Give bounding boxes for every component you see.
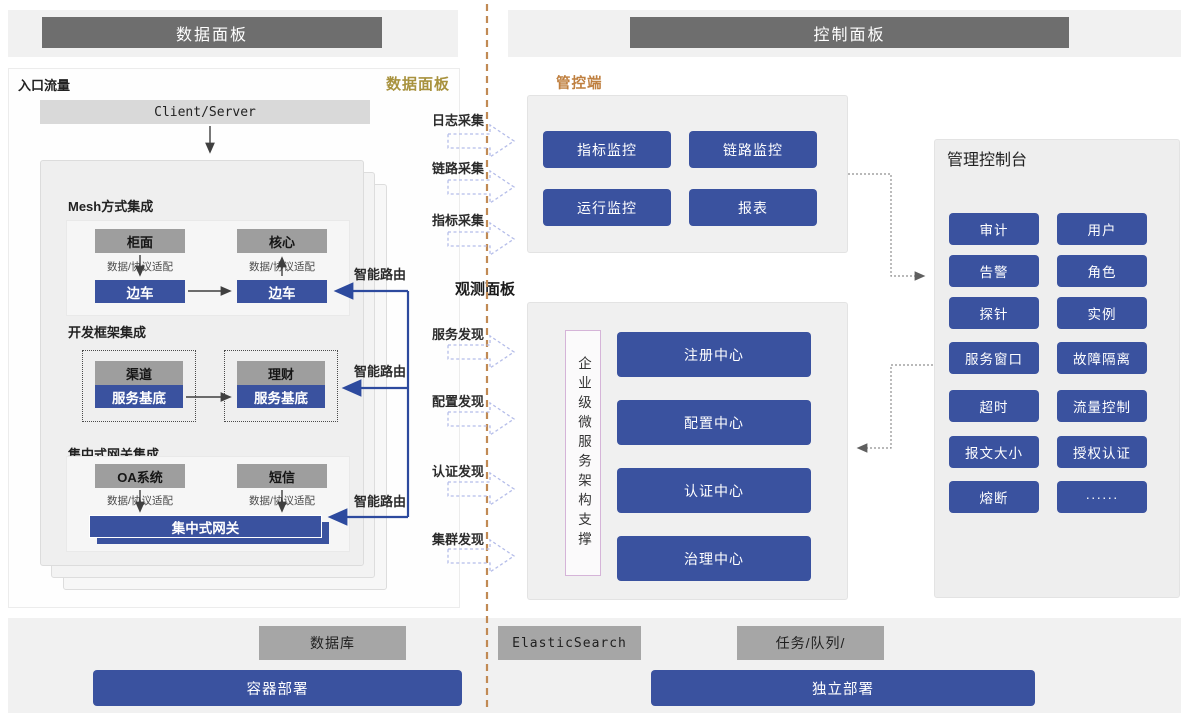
smart-route-label-1: 智能路由 [348,264,406,283]
mesh-adapter-right: 数据/协议适配 [237,259,327,274]
console-button-user: 用户 [1057,213,1147,245]
container-deploy-bar: 容器部署 [93,670,462,706]
console-button-audit: 审计 [949,213,1039,245]
config-center-bar: 配置中心 [617,400,811,445]
control-plane-header: 控制面板 [630,17,1069,48]
trace-monitor-button: 链路监控 [689,131,817,168]
service-base-left: 服务基底 [95,385,183,408]
data-plane-header: 数据面板 [42,17,382,48]
microservice-support-label: 企业级微服务架构支撑 [573,356,593,551]
monitoring-panel [527,95,848,253]
flow-label-cluster-discovery: 集群发现 [424,529,484,548]
gateway-app-right: 短信 [237,464,327,488]
console-button-fault-isolation: 故障隔离 [1057,342,1147,374]
metric-monitor-button: 指标监控 [543,131,671,168]
flow-label-metric-collect: 指标采集 [424,210,484,229]
client-server-bar: Client/Server [40,100,370,124]
service-base-right: 服务基底 [237,385,325,408]
management-console-title: 管理控制台 [947,146,1027,170]
mesh-app-left: 柜面 [95,229,185,253]
console-button-timeout: 超时 [949,390,1039,422]
registry-center-bar: 注册中心 [617,332,811,377]
framework-section-title: 开发框架集成 [68,322,146,341]
console-button-circuit-break: 熔断 [949,481,1039,513]
mesh-adapter-left: 数据/协议适配 [95,259,185,274]
gateway-adapter-right: 数据/协议适配 [237,493,327,508]
framework-app-right: 理财 [237,361,325,385]
standalone-deploy-bar: 独立部署 [651,670,1035,706]
console-button-role: 角色 [1057,255,1147,287]
flow-label-log-collect: 日志采集 [424,110,484,129]
mesh-app-right: 核心 [237,229,327,253]
console-button-instance: 实例 [1057,297,1147,329]
sidecar-right: 边车 [237,280,327,303]
console-button-probe: 探针 [949,297,1039,329]
console-button-flow-control: 流量控制 [1057,390,1147,422]
smart-route-label-3: 智能路由 [348,491,406,510]
console-button-more: ······ [1057,481,1147,513]
elasticsearch-box: ElasticSearch [498,626,641,660]
control-end-tag: 管控端 [556,72,603,93]
console-button-message-size: 报文大小 [949,436,1039,468]
microservice-support-box: 企业级微服务架构支撑 [565,330,601,576]
runtime-monitor-button: 运行监控 [543,189,671,226]
framework-app-left: 渠道 [95,361,183,385]
task-queue-box: 任务/队列/ [737,626,884,660]
data-plane-tag: 数据面板 [360,73,450,94]
console-button-authz: 授权认证 [1057,436,1147,468]
smart-route-label-2: 智能路由 [348,361,406,380]
entry-traffic-label: 入口流量 [18,75,70,94]
governance-center-bar: 治理中心 [617,536,811,581]
observe-panel-title: 观测面板 [455,278,545,299]
flow-label-trace-collect: 链路采集 [424,158,484,177]
database-box: 数据库 [259,626,406,660]
console-to-centers-connector [859,365,933,448]
auth-center-bar: 认证中心 [617,468,811,513]
flow-label-auth-discovery: 认证发现 [424,461,484,480]
architecture-diagram: 数据面板 控制面板 入口流量 数据面板 Client/Server Mesh方式… [0,0,1189,720]
flow-label-config-discovery: 配置发现 [424,391,484,410]
console-button-alert: 告警 [949,255,1039,287]
gateway-app-left: OA系统 [95,464,185,488]
sidecar-left: 边车 [95,280,185,303]
console-button-service-window: 服务窗口 [949,342,1039,374]
gateway-adapter-left: 数据/协议适配 [95,493,185,508]
flow-label-service-discovery: 服务发现 [424,324,484,343]
monitor-to-console-connector [848,174,923,276]
gateway-bar: 集中式网关 [89,515,322,538]
mesh-section-title: Mesh方式集成 [68,196,153,215]
report-button: 报表 [689,189,817,226]
